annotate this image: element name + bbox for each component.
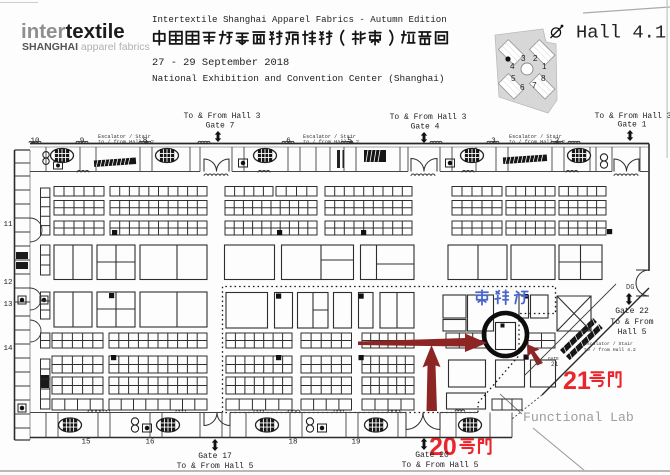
svg-text:Intertextile Shanghai Apparel: Intertextile Shanghai Apparel Fabrics - … — [152, 14, 447, 25]
svg-text:5: 5 — [347, 138, 352, 146]
svg-text:18: 18 — [288, 439, 297, 447]
svg-text:5: 5 — [511, 74, 516, 83]
svg-text:10: 10 — [30, 138, 40, 146]
svg-text:To & From Hall 3: To & From Hall 3 — [390, 113, 467, 122]
svg-text:8: 8 — [541, 74, 546, 83]
svg-text:11: 11 — [3, 221, 13, 229]
svg-text:To & From: To & From — [610, 318, 653, 327]
svg-text:to / from Hall 4.2: to / from Hall 4.2 — [584, 347, 636, 353]
svg-text:Functional Lab: Functional Lab — [523, 410, 634, 425]
svg-text:7: 7 — [532, 81, 537, 90]
svg-text:14: 14 — [3, 345, 13, 353]
svg-text:6: 6 — [520, 83, 525, 92]
svg-text:Gate 4: Gate 4 — [411, 123, 440, 132]
svg-text:12: 12 — [3, 279, 12, 287]
svg-text:27 - 29 September 2018: 27 - 29 September 2018 — [152, 57, 289, 69]
svg-text:13: 13 — [3, 301, 13, 309]
svg-text:8: 8 — [143, 138, 148, 146]
svg-text:Gate 1: Gate 1 — [618, 121, 647, 130]
svg-text:19: 19 — [351, 439, 360, 447]
svg-text:Escalator / Stair: Escalator / Stair — [584, 341, 633, 347]
svg-text:2: 2 — [533, 54, 538, 63]
svg-text:Hall 5: Hall 5 — [618, 328, 647, 337]
svg-text:Gate 17: Gate 17 — [198, 452, 232, 461]
svg-text:4: 4 — [510, 62, 515, 71]
svg-text:Gate 7: Gate 7 — [206, 122, 235, 131]
svg-text:3: 3 — [491, 138, 496, 146]
svg-text:To & From Hall 5: To & From Hall 5 — [402, 461, 479, 470]
svg-text:DG: DG — [626, 284, 634, 292]
svg-text:21: 21 — [563, 367, 591, 395]
svg-text:3: 3 — [521, 54, 526, 63]
svg-text:6: 6 — [286, 138, 291, 146]
svg-text:15: 15 — [81, 439, 91, 447]
svg-text:SHANGHAI apparel fabrics: SHANGHAI apparel fabrics — [22, 41, 150, 53]
svg-text:To & From Hall 5: To & From Hall 5 — [177, 462, 254, 471]
svg-text:intertextile: intertextile — [21, 20, 125, 43]
svg-text:Gate 22: Gate 22 — [615, 307, 649, 316]
svg-text:9: 9 — [80, 138, 85, 146]
svg-text:2: 2 — [555, 138, 560, 146]
svg-text:16: 16 — [145, 439, 155, 447]
svg-text:To & From Hall 3: To & From Hall 3 — [184, 112, 261, 121]
svg-text:1: 1 — [542, 62, 547, 71]
svg-text:21: 21 — [551, 361, 559, 368]
svg-text:Gate 20: Gate 20 — [415, 451, 449, 460]
svg-text:Hall 4.1: Hall 4.1 — [576, 22, 666, 44]
svg-text:National Exhibition and Conven: National Exhibition and Convention Cente… — [152, 73, 445, 84]
